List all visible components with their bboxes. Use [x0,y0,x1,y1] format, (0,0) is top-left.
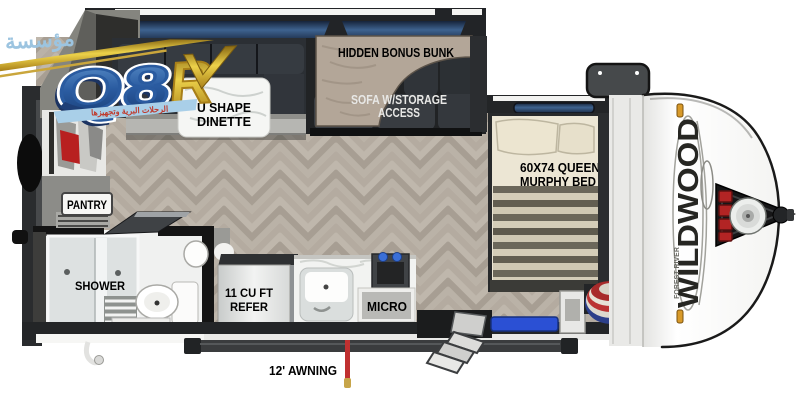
svg-text:60X74 QUEEN: 60X74 QUEEN [520,161,600,175]
svg-text:DINETTE: DINETTE [197,115,251,129]
svg-text:PANTRY: PANTRY [67,200,107,212]
svg-text:11 CU FT: 11 CU FT [225,286,274,300]
svg-text:مؤسسة: مؤسسة [4,27,75,55]
svg-text:12' AWNING: 12' AWNING [269,364,337,378]
svg-text:SHOWER: SHOWER [75,279,125,293]
svg-text:MICRO: MICRO [367,300,407,314]
svg-text:HIDDEN BONUS BUNK: HIDDEN BONUS BUNK [338,45,454,60]
svg-text:FOREST RIVER: FOREST RIVER [674,247,681,299]
svg-text:ACCESS: ACCESS [378,105,420,120]
svg-text:MURPHY BED: MURPHY BED [520,175,596,189]
svg-text:REFER: REFER [230,300,268,314]
